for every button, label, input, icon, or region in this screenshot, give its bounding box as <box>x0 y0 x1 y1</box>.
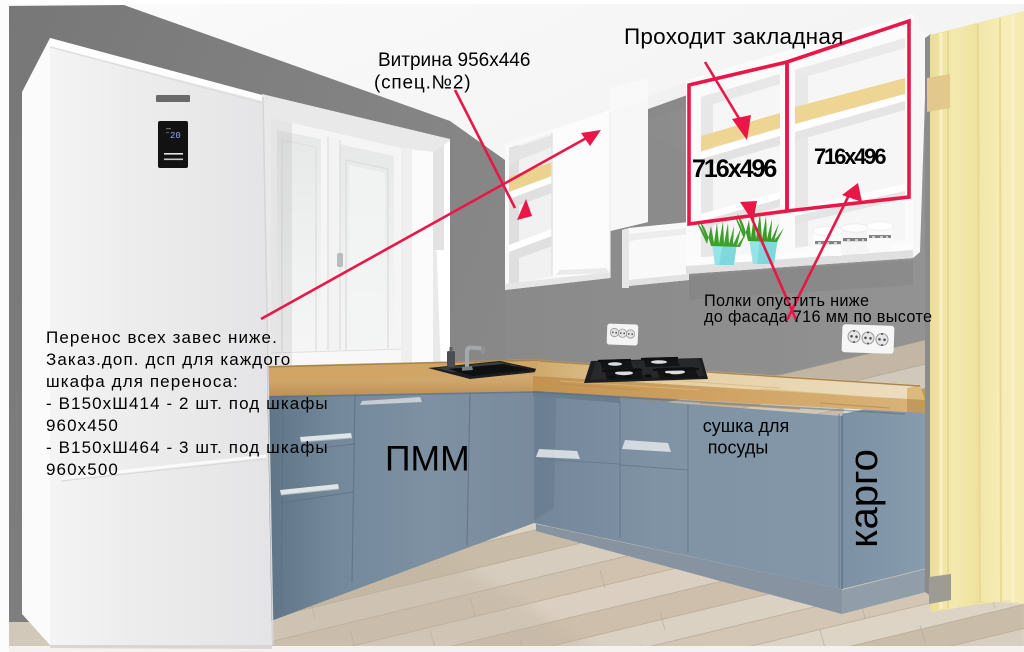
svg-text:Витрина 956х446: Витрина 956х446 <box>378 50 530 71</box>
svg-text:шкафа для переноса:: шкафа для переноса: <box>46 372 239 391</box>
svg-text:до фасада 716 мм по высоте: до фасада 716 мм по высоте <box>704 308 932 326</box>
svg-text:960х450: 960х450 <box>46 416 119 435</box>
svg-text:сушка для: сушка для <box>703 416 789 436</box>
svg-text:Перенос всех завес ниже.: Перенос всех завес ниже. <box>46 328 278 347</box>
svg-text:20: 20 <box>170 131 181 141</box>
svg-text:Проходит закладная: Проходит закладная <box>624 24 844 49</box>
svg-text:716х496: 716х496 <box>814 144 886 169</box>
svg-text:- В150хШ414 - 2 шт. под шкафы: - В150хШ414 - 2 шт. под шкафы <box>46 394 329 413</box>
svg-text:- В150хШ464 - 3 шт. под шкафы: - В150хШ464 - 3 шт. под шкафы <box>46 438 329 457</box>
svg-text:посуды: посуды <box>708 438 769 458</box>
svg-text:карго: карго <box>842 449 886 548</box>
svg-text:(спец.№2): (спец.№2) <box>374 73 471 94</box>
svg-text:Заказ.доп. дсп для каждого: Заказ.доп. дсп для каждого <box>46 350 291 369</box>
svg-text:960х500: 960х500 <box>46 460 119 479</box>
svg-text:ПММ: ПММ <box>385 439 470 479</box>
svg-text:716х496: 716х496 <box>692 155 776 183</box>
